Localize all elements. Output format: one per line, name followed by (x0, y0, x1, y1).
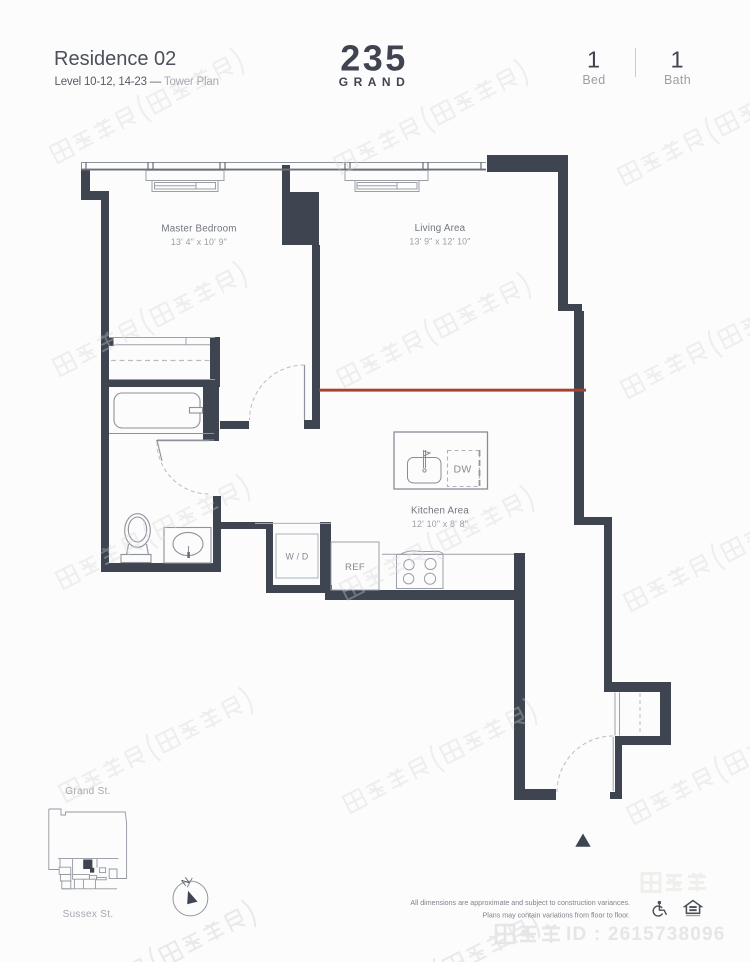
svg-text:Master Bedroom: Master Bedroom (161, 224, 236, 235)
svg-text:1: 1 (670, 46, 683, 72)
svg-text:Residence 02: Residence 02 (54, 48, 176, 70)
svg-text:All dimensions are approximate: All dimensions are approximate and subje… (410, 899, 630, 907)
svg-text:Level 10-12, 14-23 — Tower Pla: Level 10-12, 14-23 — Tower Plan (55, 76, 219, 88)
svg-text:235: 235 (340, 38, 408, 79)
svg-text:Bed: Bed (582, 73, 605, 87)
svg-text:12' 10" x 8' 8": 12' 10" x 8' 8" (412, 519, 468, 529)
svg-text:GRAND: GRAND (339, 75, 411, 89)
svg-text:ID : 2615738096: ID : 2615738096 (566, 924, 726, 945)
svg-text:Kitchen Area: Kitchen Area (411, 506, 469, 517)
svg-text:Bath: Bath (664, 73, 691, 87)
svg-text:W / D: W / D (286, 552, 309, 562)
svg-text:Grand St.: Grand St. (65, 786, 111, 797)
svg-text:Living Area: Living Area (415, 223, 466, 234)
svg-text:Plans may contain variations f: Plans may contain variations from floor … (483, 911, 630, 919)
svg-text:REF: REF (345, 562, 365, 573)
svg-text:DW: DW (453, 464, 471, 476)
svg-text:1: 1 (587, 46, 600, 72)
svg-text:13' 4" x 10' 9": 13' 4" x 10' 9" (171, 237, 227, 247)
svg-text:13' 9" x 12' 10": 13' 9" x 12' 10" (409, 237, 470, 247)
svg-text:Sussex St.: Sussex St. (63, 909, 114, 920)
